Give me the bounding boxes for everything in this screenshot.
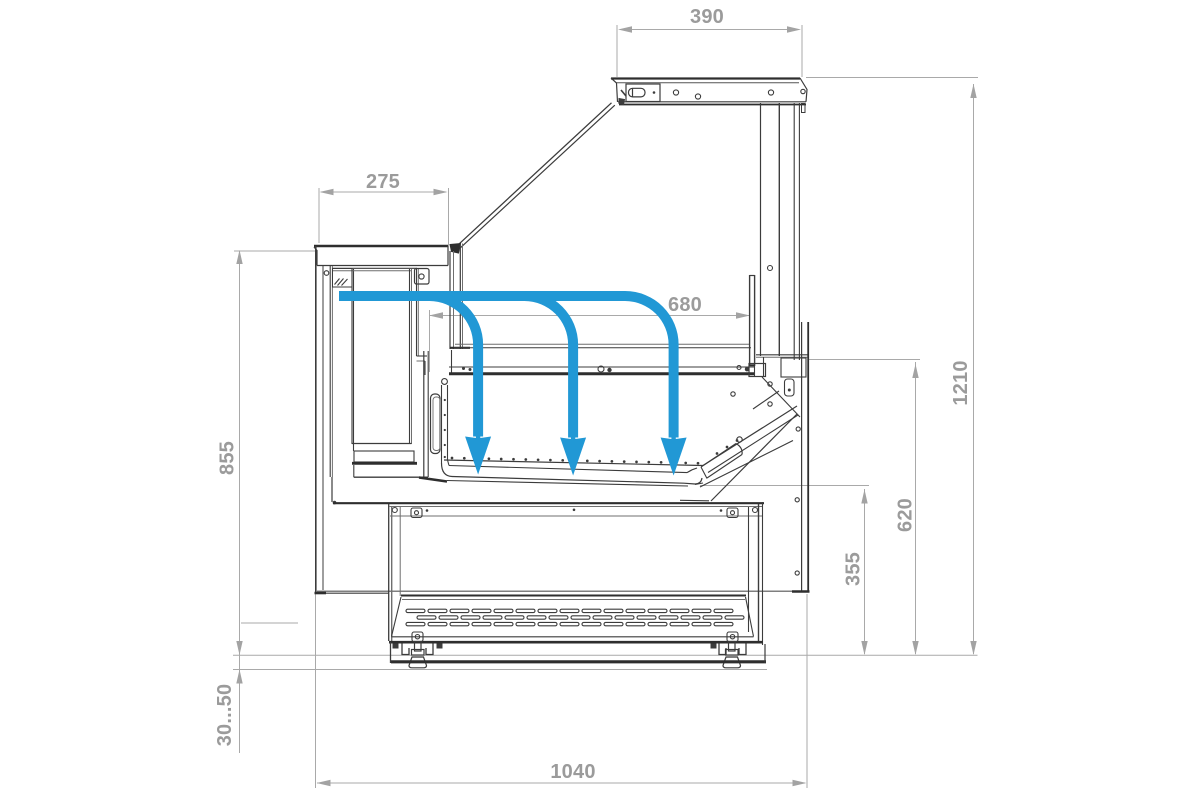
svg-text:1210: 1210 <box>950 360 972 405</box>
svg-text:275: 275 <box>366 171 400 193</box>
svg-text:30...50: 30...50 <box>214 684 236 747</box>
svg-text:1040: 1040 <box>550 761 595 783</box>
svg-text:620: 620 <box>895 498 917 532</box>
svg-text:355: 355 <box>843 552 865 586</box>
svg-text:390: 390 <box>690 6 724 28</box>
svg-text:680: 680 <box>668 294 702 316</box>
svg-text:855: 855 <box>217 441 239 475</box>
